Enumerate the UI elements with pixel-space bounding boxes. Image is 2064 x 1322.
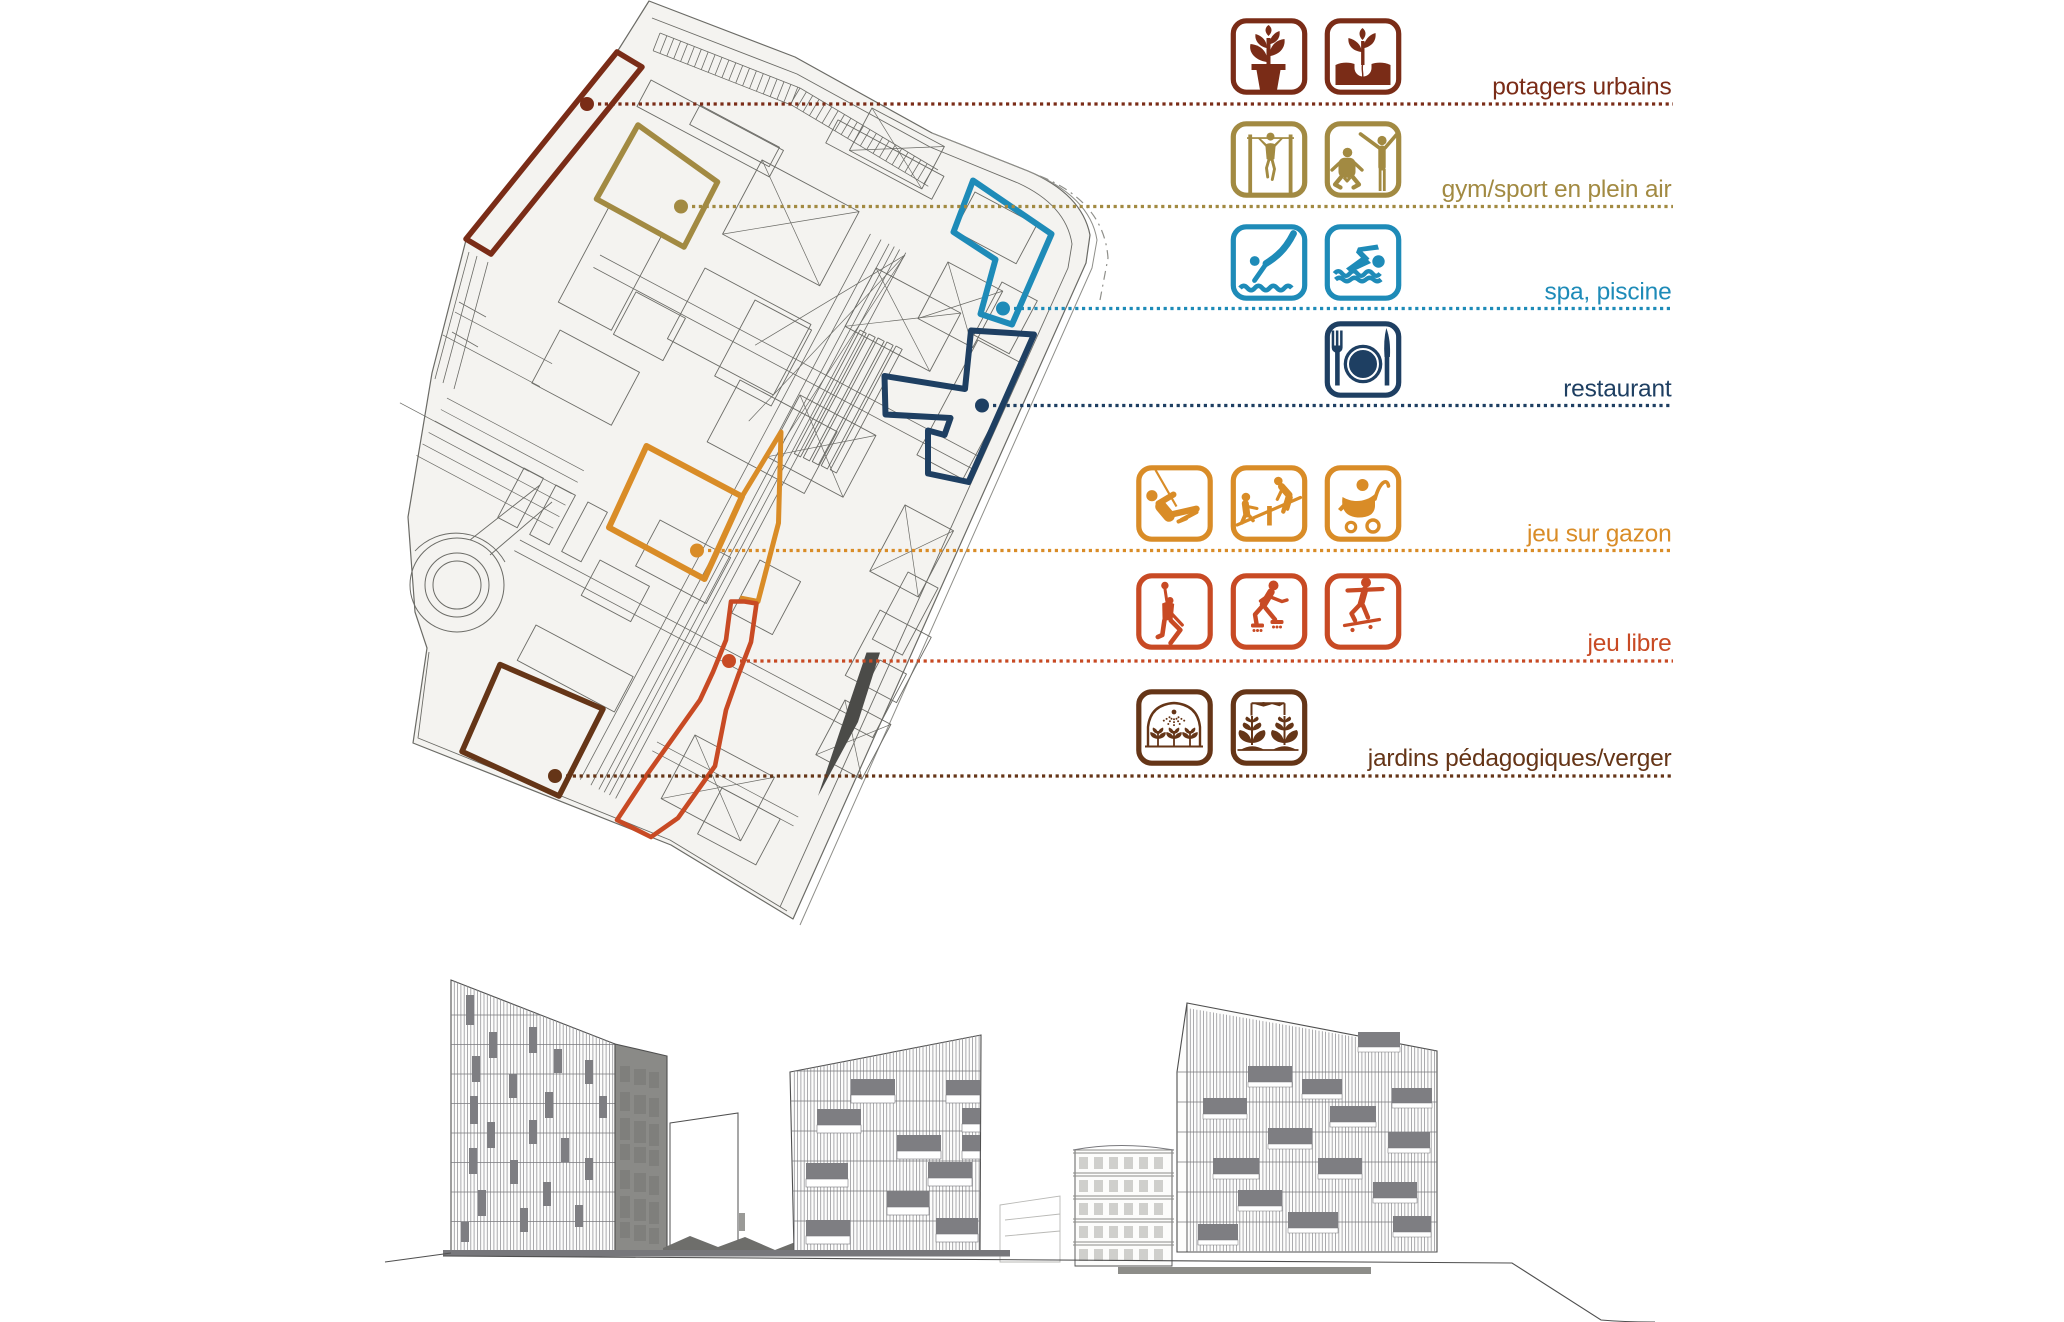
svg-text:jeu sur gazon: jeu sur gazon xyxy=(1526,521,1672,548)
svg-text:potagers urbains: potagers urbains xyxy=(1492,74,1671,101)
svg-text:restaurant: restaurant xyxy=(1563,376,1672,403)
svg-text:spa, piscine: spa, piscine xyxy=(1545,279,1672,306)
svg-text:gym/sport en plein air: gym/sport en plein air xyxy=(1442,176,1672,203)
svg-text:jardins pédagogiques/verger: jardins pédagogiques/verger xyxy=(1367,745,1672,772)
svg-text:jeu libre: jeu libre xyxy=(1587,630,1672,657)
